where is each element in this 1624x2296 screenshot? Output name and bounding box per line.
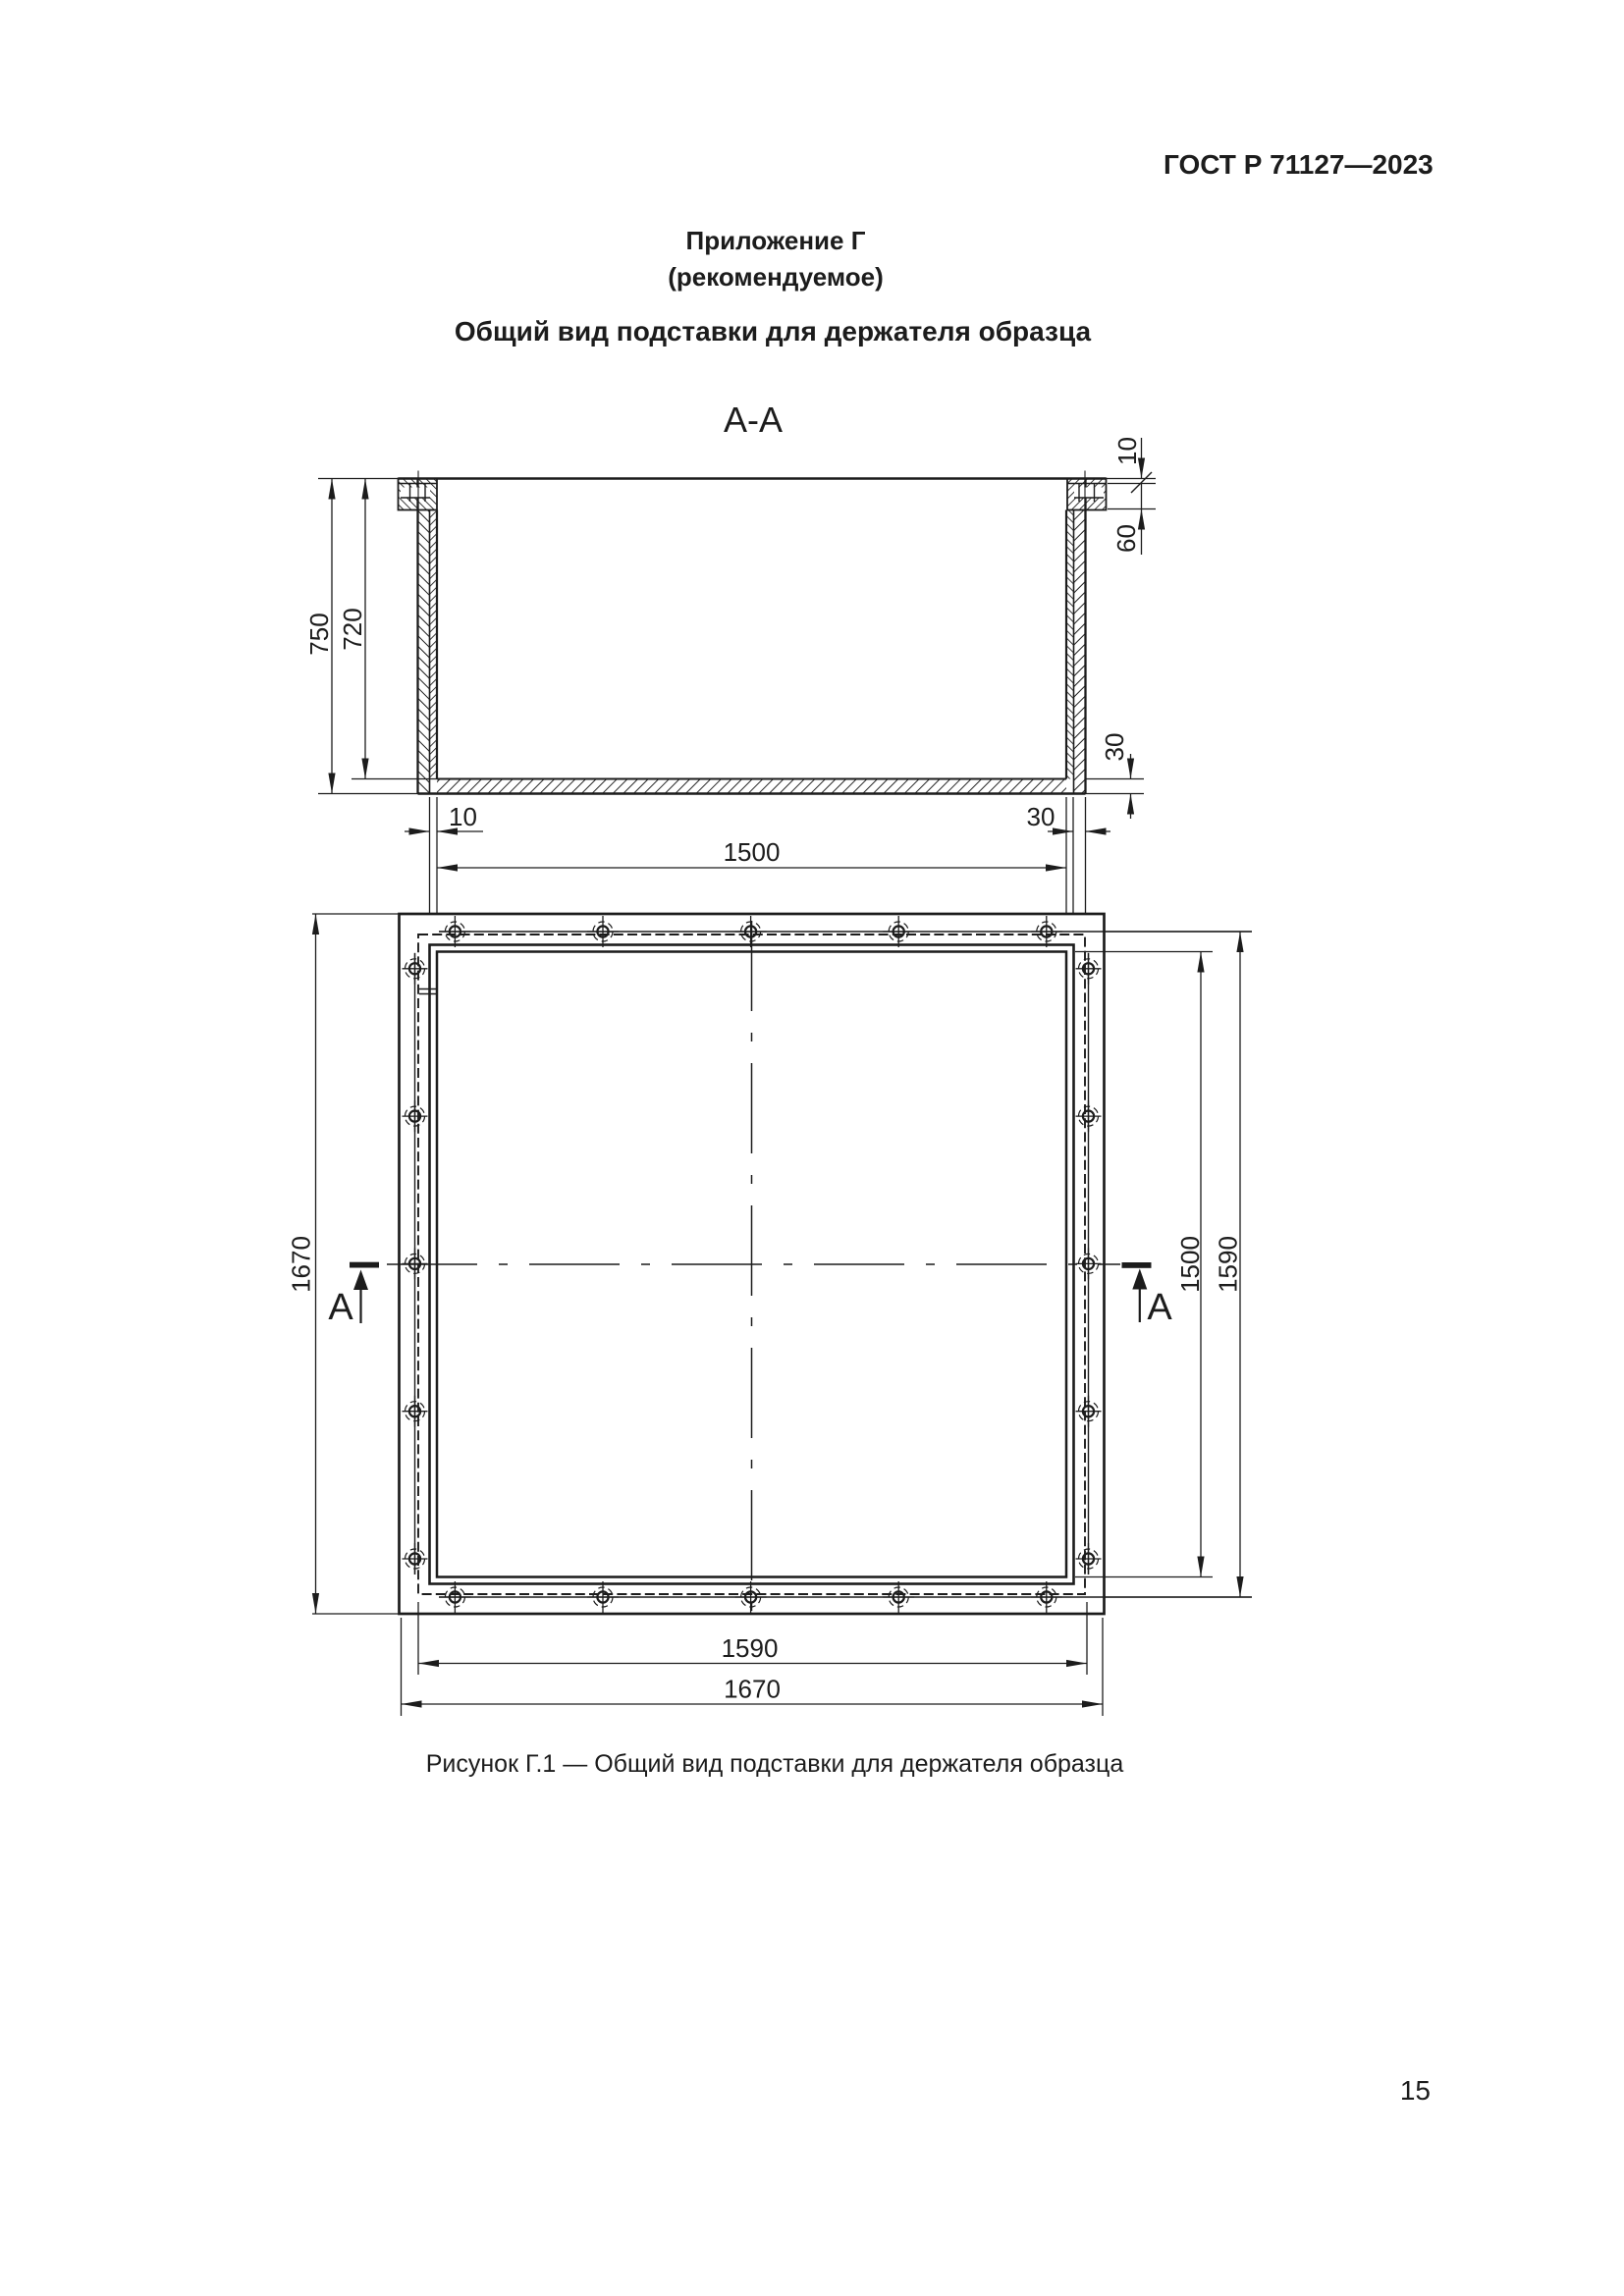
svg-text:1590: 1590 [722, 1633, 779, 1663]
svg-text:1500: 1500 [1175, 1236, 1205, 1293]
svg-text:720: 720 [338, 608, 367, 650]
svg-text:1500: 1500 [724, 837, 781, 867]
svg-text:10: 10 [1112, 437, 1142, 465]
svg-text:10: 10 [449, 802, 477, 831]
svg-text:1670: 1670 [287, 1236, 316, 1293]
svg-text:А: А [1147, 1287, 1172, 1328]
svg-text:30: 30 [1100, 733, 1129, 762]
svg-text:1670: 1670 [724, 1675, 781, 1704]
svg-text:1590: 1590 [1214, 1236, 1243, 1293]
svg-text:А: А [328, 1287, 353, 1328]
svg-text:30: 30 [1027, 802, 1056, 831]
svg-text:750: 750 [304, 613, 334, 655]
svg-text:60: 60 [1111, 524, 1141, 553]
